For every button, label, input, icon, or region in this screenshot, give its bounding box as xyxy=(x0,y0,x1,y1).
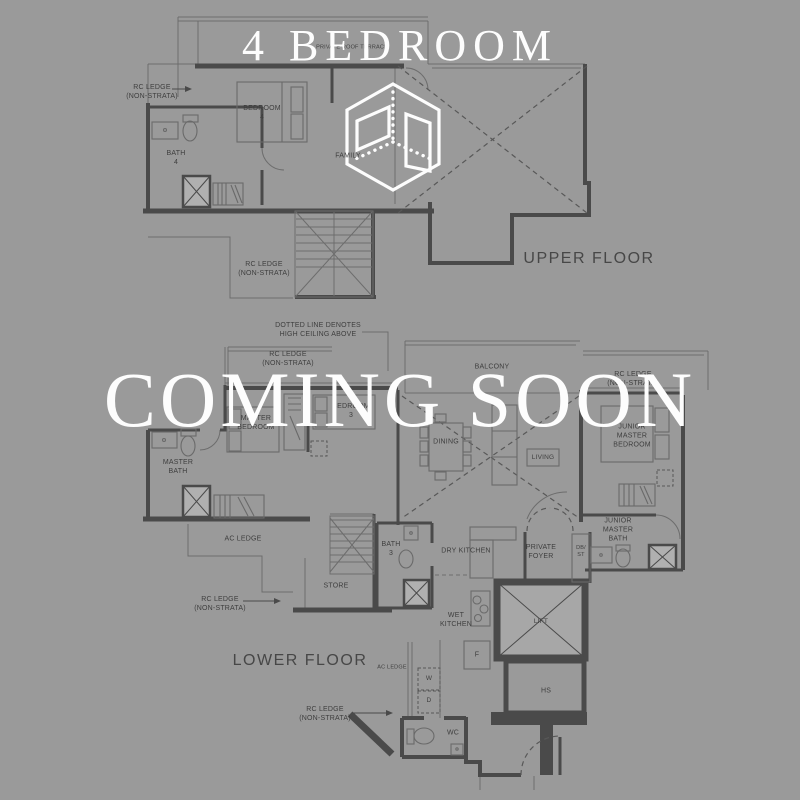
label-ac-ledge-small: AC LEDGE xyxy=(377,664,406,671)
label-ceiling-note: DOTTED LINE DENOTES HIGH CEILING ABOVE xyxy=(275,321,361,339)
bath3-fixtures xyxy=(399,526,418,568)
label-dry-kitchen: DRY KITCHEN xyxy=(441,546,490,555)
label-household-shelter: HS xyxy=(541,686,551,695)
floorplan-page: PRIVATE ROOF TERRACE RC LEDGE (NON-STRAT… xyxy=(0,0,800,800)
label-dryer: D xyxy=(427,697,432,705)
bath4-fixtures xyxy=(152,115,198,141)
label-family: FAMILY xyxy=(335,151,361,160)
label-lower-floor: LOWER FLOOR xyxy=(233,652,368,670)
brand-logo-icon xyxy=(347,84,439,190)
label-fridge: F xyxy=(475,650,479,659)
junior-master-bath-fixtures xyxy=(591,545,630,567)
label-living: LIVING xyxy=(532,454,555,462)
coming-soon-watermark: COMING SOON xyxy=(0,355,800,445)
label-junior-master-bath: JUNIOR MASTER BATH xyxy=(603,516,633,543)
label-lift: LIFT xyxy=(534,618,548,626)
label-washer: W xyxy=(426,675,432,683)
label-wc: WC xyxy=(447,728,459,737)
label-bath-3: BATH 3 xyxy=(382,540,401,558)
page-title: 4 BEDROOM xyxy=(0,20,800,71)
label-wet-kitchen: WET KITCHEN xyxy=(440,611,472,629)
label-bedroom-4: BEDROOM 4 xyxy=(243,104,281,122)
label-ac-ledge: AC LEDGE xyxy=(225,534,262,543)
label-upper-floor: UPPER FLOOR xyxy=(523,250,654,268)
label-bath-4: BATH 4 xyxy=(167,149,186,167)
label-master-bath: MASTER BATH xyxy=(163,458,193,476)
label-db-st: DB/ ST xyxy=(576,545,586,559)
label-store: STORE xyxy=(324,581,349,590)
label-rc-ledge-upper-mid: RC LEDGE (NON-STRATA) xyxy=(238,260,290,278)
label-rc-ledge-bottom: RC LEDGE (NON-STRATA) xyxy=(299,705,351,723)
label-private-foyer: PRIVATE FOYER xyxy=(526,543,556,561)
label-rc-ledge-upper-left: RC LEDGE (NON-STRATA) xyxy=(126,83,178,101)
label-rc-ledge-lower-left: RC LEDGE (NON-STRATA) xyxy=(194,595,246,613)
